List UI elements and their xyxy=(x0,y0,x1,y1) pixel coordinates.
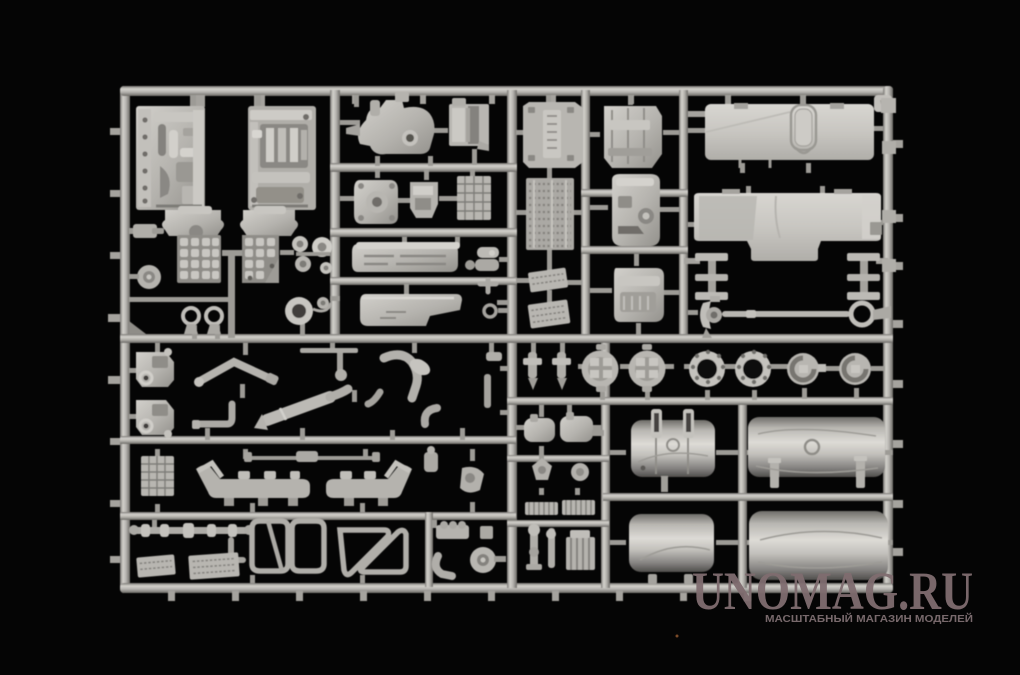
svg-text:МАСШТАБНЫЙ МАГАЗИН МОДЕЛЕЙ: МАСШТАБНЫЙ МАГАЗИН МОДЕЛЕЙ xyxy=(765,612,973,625)
svg-text:UNOMAG.RU: UNOMAG.RU xyxy=(692,561,973,621)
